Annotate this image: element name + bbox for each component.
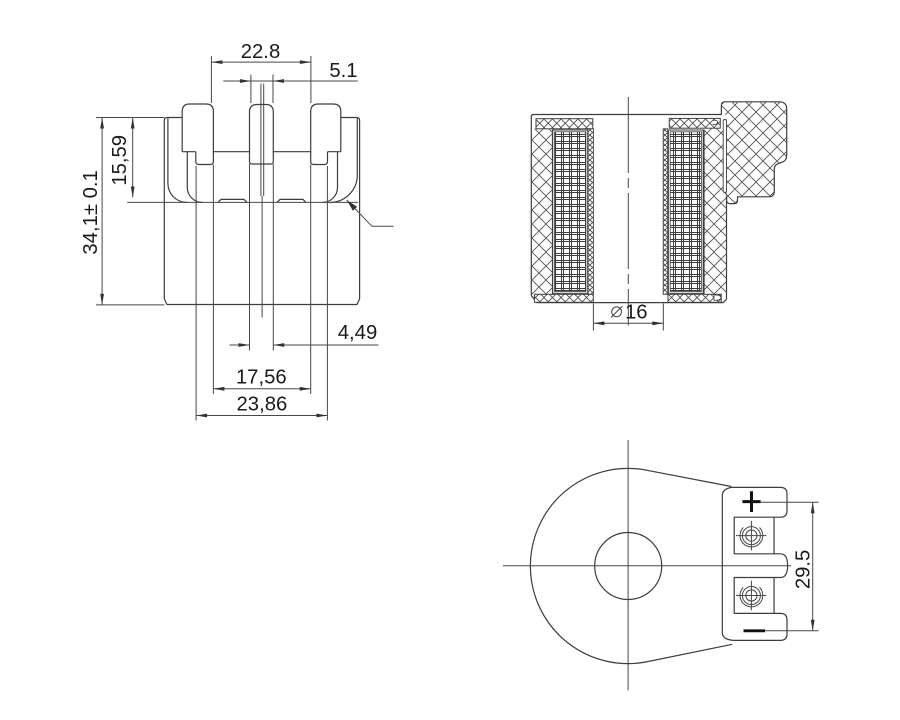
svg-text:22.8: 22.8: [241, 41, 280, 63]
svg-text:23,86: 23,86: [237, 393, 288, 415]
svg-text:4,49: 4,49: [338, 322, 377, 344]
svg-text:29.5: 29.5: [793, 550, 815, 589]
svg-text:5.1: 5.1: [329, 60, 357, 82]
svg-text:16: 16: [625, 301, 648, 323]
svg-text:17,56: 17,56: [236, 367, 287, 389]
svg-text:15,59: 15,59: [109, 135, 131, 186]
svg-text:34,1± 0.1: 34,1± 0.1: [80, 170, 102, 254]
